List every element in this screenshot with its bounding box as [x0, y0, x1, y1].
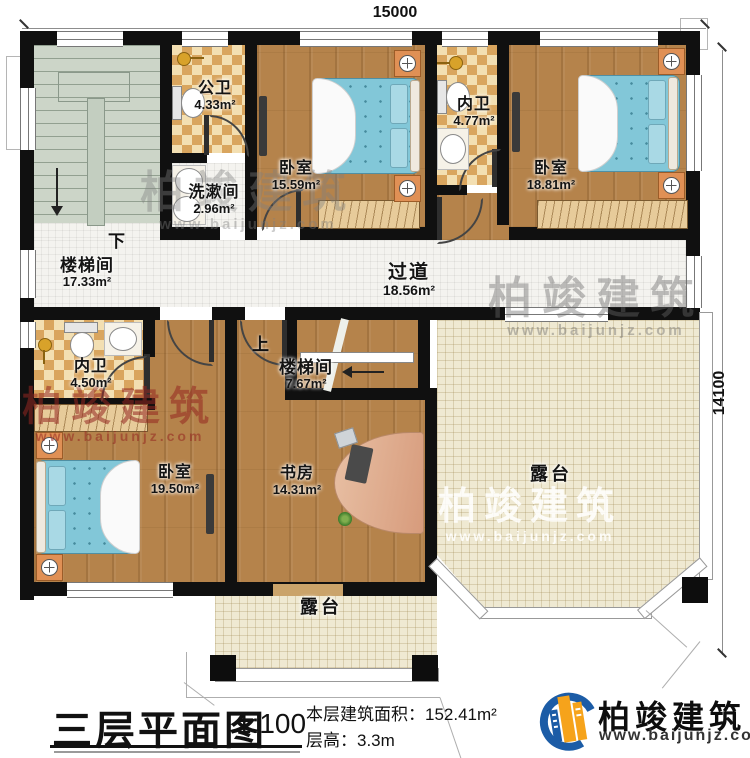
brand-logo	[538, 688, 596, 752]
room-name: 楼梯间	[27, 256, 147, 275]
room-area: 4.77m²	[424, 114, 524, 129]
eave-line	[662, 641, 701, 688]
room-label-study: 书房 14.31m²	[247, 465, 347, 497]
dimension-line-top	[22, 28, 706, 29]
window	[57, 31, 123, 47]
wall	[497, 45, 509, 225]
window	[505, 307, 608, 322]
sink-icon	[440, 134, 466, 164]
room-name: 内卫	[41, 358, 141, 376]
window	[300, 31, 412, 47]
wall	[172, 227, 220, 240]
window	[20, 322, 36, 348]
floor-height-text: 层高：3.3m	[306, 726, 395, 751]
room-name: 卧室	[501, 160, 601, 178]
plan-scale: 1:100	[236, 708, 306, 740]
window	[67, 582, 173, 598]
brand-url: www.baijunjz.com	[599, 727, 750, 745]
room-area: 4.33m²	[165, 98, 265, 113]
brand-logo-icon	[538, 688, 596, 752]
pillow	[648, 124, 666, 164]
plant-icon	[338, 512, 352, 526]
terrace-door-threshold	[273, 584, 343, 596]
lamp-icon	[399, 55, 416, 72]
column	[682, 577, 708, 603]
bed-headboard	[36, 461, 46, 553]
room-area: 19.50m²	[125, 482, 225, 497]
room-name: 内卫	[424, 96, 524, 114]
stair-up-label: 上	[252, 330, 269, 355]
room-name: 卧室	[125, 464, 225, 482]
toilet-icon	[70, 332, 94, 358]
wall	[20, 307, 160, 320]
pillow	[390, 128, 408, 168]
wall	[418, 320, 430, 388]
floor-area-text: 本层建筑面积：152.41m²	[306, 700, 497, 725]
dimension-top-label: 15000	[355, 4, 435, 22]
room-name: 露台	[501, 464, 601, 484]
room-label-bedroom-top: 卧室 15.59m²	[246, 160, 346, 192]
room-label-corridor: 过道 18.56m²	[349, 262, 469, 299]
closet	[537, 200, 688, 229]
room-label-ensuite-left: 内卫 4.50m²	[41, 358, 141, 390]
window	[686, 75, 702, 171]
bed-headboard	[668, 77, 678, 170]
sink-icon	[109, 327, 137, 351]
lamp-icon	[41, 437, 58, 454]
parapet	[699, 312, 713, 580]
room-label-bedroom-bottom: 卧室 19.50m²	[125, 464, 225, 496]
closet	[34, 404, 148, 432]
room-label-public-bath: 公卫 4.33m²	[165, 80, 265, 112]
dimension-right-label: 14100	[711, 363, 729, 423]
window	[182, 31, 228, 47]
room-area: 4.50m²	[41, 376, 141, 391]
room-area: 15.59m²	[246, 178, 346, 193]
shower-head-icon	[38, 338, 52, 352]
wall	[172, 153, 207, 163]
pillow	[390, 84, 408, 124]
eave-line	[646, 610, 688, 648]
stair-direction-arrow	[56, 168, 58, 208]
parapet	[215, 668, 439, 682]
lamp-icon	[663, 177, 680, 194]
window	[686, 256, 702, 308]
eave-line	[186, 652, 187, 698]
room-label-terrace-bottom: 露台	[271, 597, 371, 617]
parapet	[480, 607, 652, 619]
column	[412, 655, 438, 681]
shower-head-icon	[449, 56, 463, 70]
wall	[225, 307, 237, 586]
room-name: 卧室	[246, 160, 346, 178]
room-label-terrace-right: 露台	[501, 464, 601, 484]
shower-head-icon	[177, 52, 191, 66]
room-label-stair-hall-main: 楼梯间 17.33m²	[27, 256, 147, 290]
room-area: 17.33m²	[27, 275, 147, 290]
room-label-stair-hall-center: 楼梯间 7.67m²	[246, 358, 366, 392]
column	[210, 655, 236, 681]
room-label-ensuite-top: 内卫 4.77m²	[424, 96, 524, 128]
room-area: 14.31m²	[247, 483, 347, 498]
room-area: 18.81m²	[501, 178, 601, 193]
floor-plan-canvas: 15000 14100 柏竣建筑 www.baijunjz.com 柏竣建筑 w…	[0, 0, 750, 758]
wall	[285, 307, 430, 320]
window	[20, 88, 36, 150]
lamp-icon	[41, 559, 58, 576]
room-name: 公卫	[165, 80, 265, 98]
pillow	[48, 510, 66, 550]
window	[540, 31, 658, 47]
room-name: 露台	[271, 597, 371, 617]
title-underline	[50, 745, 302, 748]
room-name: 书房	[247, 465, 347, 483]
closet	[318, 200, 420, 229]
bed-headboard	[410, 80, 420, 172]
pillow	[648, 80, 666, 120]
room-area: 2.96m²	[164, 202, 264, 217]
pillow	[48, 466, 66, 506]
wall	[608, 307, 686, 320]
window	[442, 31, 488, 47]
stair-down-label: 下	[108, 227, 125, 252]
wall	[425, 388, 437, 586]
wall	[430, 307, 505, 320]
stair-rail	[87, 98, 105, 226]
lamp-icon	[663, 53, 680, 70]
room-area: 18.56m²	[349, 283, 469, 299]
lamp-icon	[399, 180, 416, 197]
title-underline	[54, 751, 300, 753]
room-label-bedroom-right: 卧室 18.81m²	[501, 160, 601, 192]
wall	[143, 307, 155, 357]
wall	[425, 45, 437, 240]
room-area: 7.67m²	[246, 377, 366, 392]
room-name: 过道	[349, 262, 469, 283]
stair-arrow-head	[51, 206, 63, 216]
room-name: 楼梯间	[246, 358, 366, 377]
dimension-line-right	[722, 50, 723, 655]
